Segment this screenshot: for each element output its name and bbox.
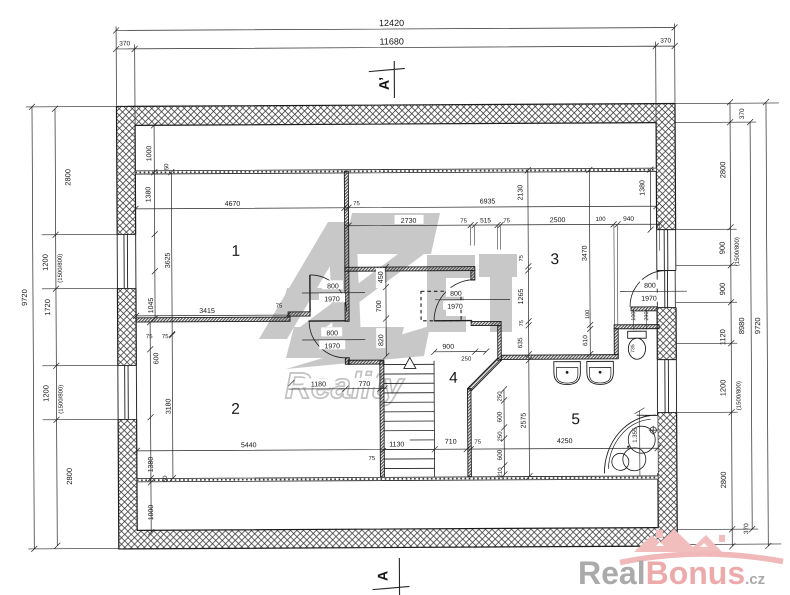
svg-text:210: 210	[498, 467, 504, 478]
svg-text:75: 75	[460, 219, 467, 225]
svg-text:1970: 1970	[324, 296, 340, 303]
svg-text:6935: 6935	[480, 198, 496, 205]
svg-text:2500: 2500	[550, 217, 566, 224]
svg-text:1000: 1000	[148, 505, 155, 521]
svg-text:290: 290	[644, 311, 650, 320]
svg-text:710: 710	[445, 439, 457, 446]
svg-text:2130: 2130	[517, 185, 524, 201]
svg-text:50: 50	[164, 163, 170, 170]
svg-text:250: 250	[461, 357, 472, 363]
svg-text:75: 75	[519, 320, 525, 326]
svg-text:75: 75	[519, 255, 525, 261]
svg-text:2800: 2800	[65, 468, 74, 485]
svg-text:735: 735	[630, 344, 636, 353]
svg-text:(1500/800): (1500/800)	[736, 381, 742, 410]
svg-text:600: 600	[497, 411, 504, 422]
svg-text:75: 75	[162, 334, 169, 340]
svg-text:370: 370	[119, 40, 130, 47]
svg-text:100: 100	[585, 310, 591, 319]
svg-text:515: 515	[480, 217, 491, 224]
svg-text:250: 250	[497, 391, 503, 402]
svg-text:A: A	[374, 571, 390, 581]
svg-text:12420: 12420	[379, 18, 404, 28]
svg-text:1130: 1130	[389, 441, 404, 448]
svg-text:770: 770	[359, 381, 371, 388]
svg-text:RealBonus.cz: RealBonus.cz	[578, 555, 765, 591]
svg-text:9720: 9720	[20, 289, 29, 306]
svg-text:11680: 11680	[379, 36, 403, 46]
svg-text:1380: 1380	[145, 187, 152, 203]
svg-text:1200: 1200	[41, 385, 50, 402]
svg-text:820: 820	[378, 334, 385, 346]
svg-text:1180: 1180	[311, 381, 326, 388]
svg-text:1120: 1120	[718, 329, 727, 345]
svg-text:1970: 1970	[324, 343, 340, 350]
svg-text:800: 800	[327, 283, 339, 290]
svg-text:4250: 4250	[557, 438, 573, 445]
svg-text:1: 1	[231, 243, 240, 260]
svg-text:900: 900	[442, 344, 454, 351]
svg-text:370: 370	[660, 38, 671, 45]
svg-text:635: 635	[517, 337, 524, 348]
svg-text:5: 5	[571, 411, 580, 428]
svg-text:1200: 1200	[41, 254, 50, 271]
svg-text:610: 610	[582, 335, 589, 346]
svg-text:900: 900	[718, 283, 727, 296]
svg-text:1265: 1265	[518, 289, 525, 305]
svg-text:1970: 1970	[641, 296, 657, 303]
svg-text:75: 75	[276, 304, 283, 310]
svg-text:75: 75	[146, 334, 153, 340]
svg-text:700: 700	[376, 300, 383, 312]
svg-text:100: 100	[631, 312, 637, 321]
svg-text:3180: 3180	[166, 398, 173, 414]
svg-text:75: 75	[474, 440, 481, 446]
svg-text:1380: 1380	[148, 457, 155, 473]
svg-text:3470: 3470	[582, 245, 589, 261]
svg-text:2800: 2800	[63, 169, 72, 186]
svg-text:800: 800	[644, 283, 656, 290]
svg-text:2800: 2800	[718, 162, 727, 179]
svg-text:100: 100	[596, 217, 607, 223]
svg-text:800: 800	[450, 291, 462, 298]
svg-text:75: 75	[503, 218, 510, 224]
svg-text:75: 75	[368, 456, 375, 462]
svg-text:1200: 1200	[718, 380, 727, 397]
svg-text:2730: 2730	[401, 218, 417, 225]
svg-text:250: 250	[498, 431, 504, 442]
svg-text:9720: 9720	[753, 317, 762, 334]
svg-text:800: 800	[326, 330, 338, 337]
svg-text:(1500/800): (1500/800)	[58, 254, 64, 283]
svg-text:2800: 2800	[719, 472, 728, 489]
svg-text:600: 600	[497, 449, 504, 460]
svg-text:50: 50	[163, 475, 169, 482]
svg-text:5440: 5440	[241, 442, 257, 449]
svg-text:2575: 2575	[521, 413, 528, 429]
svg-text:2: 2	[231, 401, 240, 418]
svg-text:370: 370	[739, 108, 746, 119]
svg-text:900: 900	[718, 242, 727, 255]
svg-text:3625: 3625	[165, 252, 172, 268]
svg-text:370: 370	[743, 523, 750, 534]
svg-text:450: 450	[378, 271, 385, 283]
svg-text:940: 940	[623, 216, 634, 223]
svg-text:4670: 4670	[225, 201, 241, 208]
svg-text:1000: 1000	[146, 146, 153, 162]
svg-text:1.355: 1.355	[633, 427, 639, 443]
svg-text:A’: A’	[376, 77, 392, 90]
svg-text:(1500/800): (1500/800)	[58, 385, 64, 414]
svg-text:8980: 8980	[737, 317, 746, 334]
svg-text:3415: 3415	[199, 308, 215, 315]
svg-text:(1500/800): (1500/800)	[735, 237, 741, 266]
svg-text:3: 3	[550, 251, 559, 268]
svg-text:4: 4	[449, 370, 458, 387]
svg-text:1720: 1720	[43, 299, 52, 316]
svg-text:1380: 1380	[639, 180, 646, 196]
svg-text:1045: 1045	[148, 298, 155, 314]
svg-text:1970: 1970	[447, 304, 463, 311]
svg-text:600: 600	[153, 352, 160, 364]
svg-text:75: 75	[353, 201, 360, 207]
